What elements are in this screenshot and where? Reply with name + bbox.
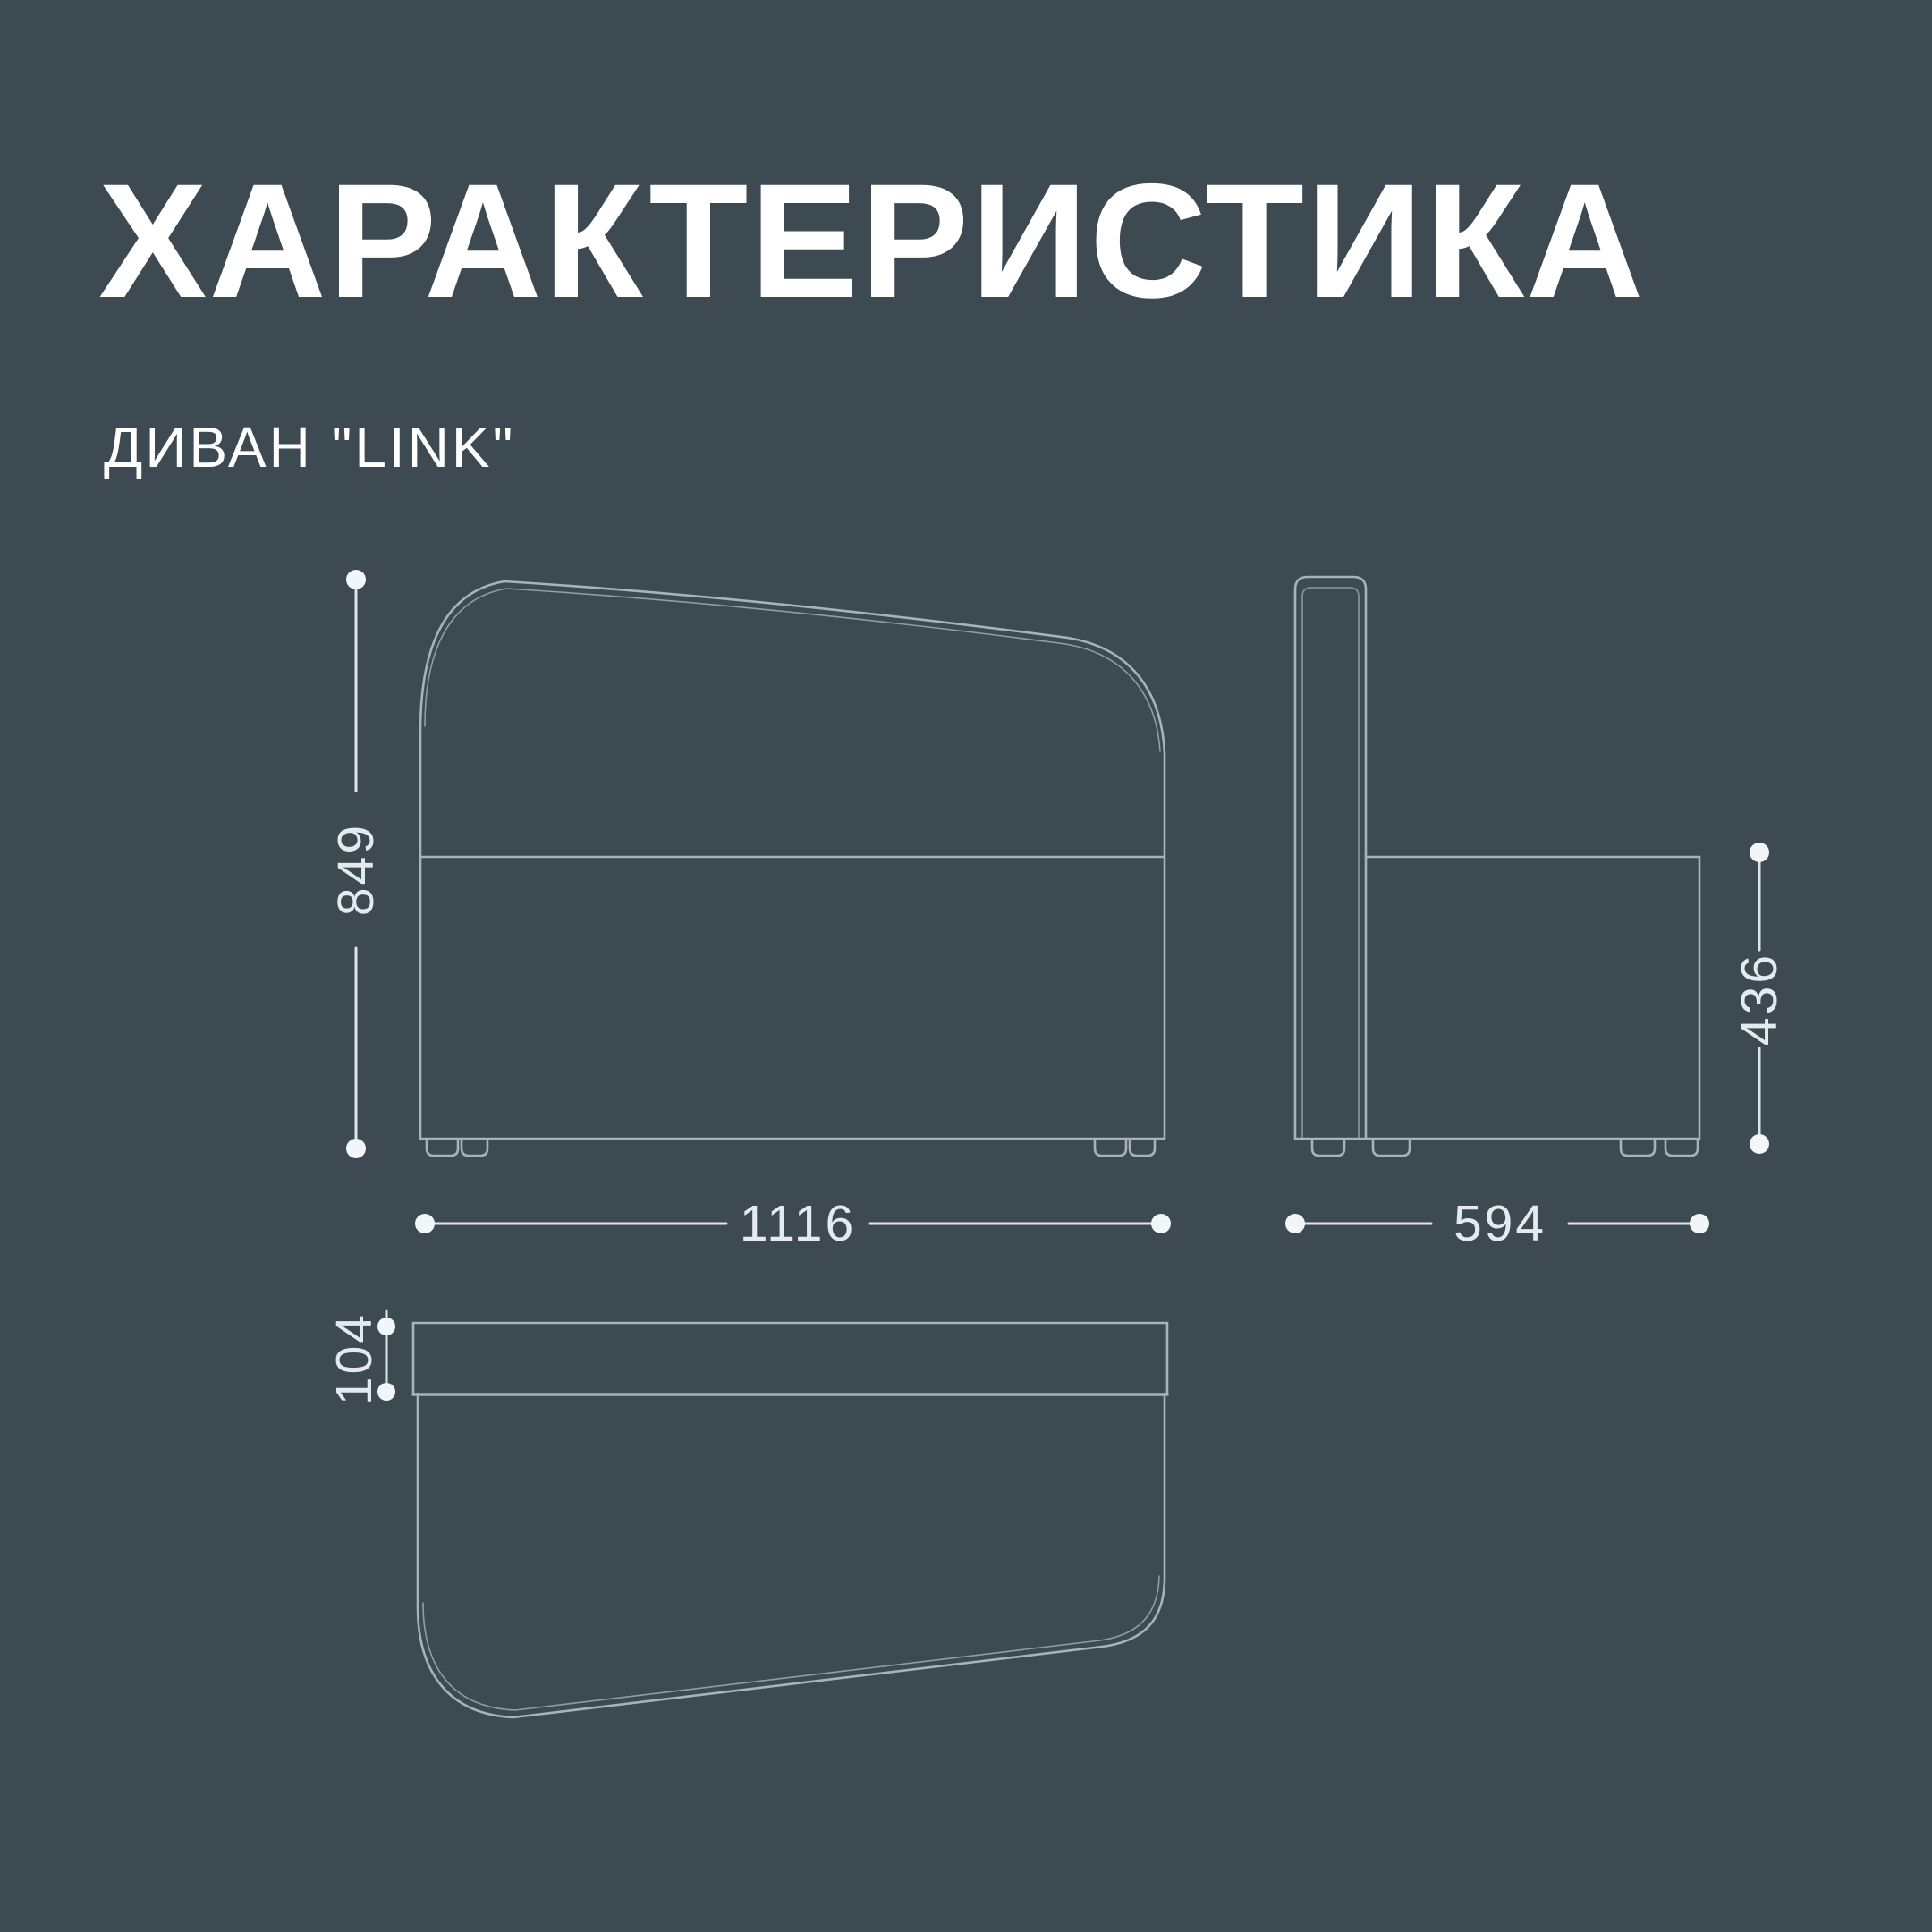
top-body-outline bbox=[418, 1394, 1165, 1717]
dimension-depth-594: 594 bbox=[1285, 1195, 1709, 1252]
top-bottom-piping bbox=[423, 1576, 1159, 1710]
side-backrest-outline bbox=[1295, 577, 1366, 1139]
dim-endpoint-dot bbox=[1750, 843, 1769, 862]
front-view bbox=[420, 581, 1165, 1156]
dim-endpoint-dot bbox=[346, 570, 366, 589]
front-outline bbox=[420, 581, 1165, 1139]
dim-label-height: 849 bbox=[327, 823, 385, 916]
dim-endpoint-dot bbox=[415, 1214, 435, 1233]
dim-endpoint-dot bbox=[1285, 1214, 1305, 1233]
dimension-width-1116: 1116 bbox=[415, 1195, 1171, 1252]
side-feet bbox=[1312, 1140, 1698, 1156]
dim-endpoint-dot bbox=[1151, 1214, 1171, 1233]
side-view bbox=[1295, 577, 1699, 1156]
dim-label-width: 1116 bbox=[740, 1195, 856, 1252]
dim-endpoint-dot bbox=[346, 1139, 366, 1158]
dim-label-seat-height: 436 bbox=[1731, 953, 1788, 1046]
dimension-drawing: 849 1116 594 436 104 bbox=[0, 0, 1932, 1932]
dim-label-depth: 594 bbox=[1453, 1195, 1546, 1252]
spec-page: ХАРАКТЕРИСТИКА ДИВАН "LINK" bbox=[0, 0, 1932, 1932]
dimension-backrest-depth-104: 104 bbox=[326, 1311, 395, 1405]
dim-endpoint-dot bbox=[1750, 1134, 1769, 1154]
dimension-seat-height-436: 436 bbox=[1731, 843, 1788, 1154]
top-view bbox=[413, 1323, 1167, 1717]
dim-endpoint-dot bbox=[1690, 1214, 1709, 1233]
dim-label-backrest-depth: 104 bbox=[326, 1312, 383, 1405]
top-backrest-band bbox=[413, 1323, 1167, 1394]
side-seat-outline bbox=[1295, 857, 1699, 1139]
side-backrest-inner-line bbox=[1302, 588, 1359, 1139]
dimension-height-849: 849 bbox=[327, 570, 385, 1158]
front-feet bbox=[427, 1140, 1155, 1156]
front-top-piping bbox=[425, 589, 1160, 751]
